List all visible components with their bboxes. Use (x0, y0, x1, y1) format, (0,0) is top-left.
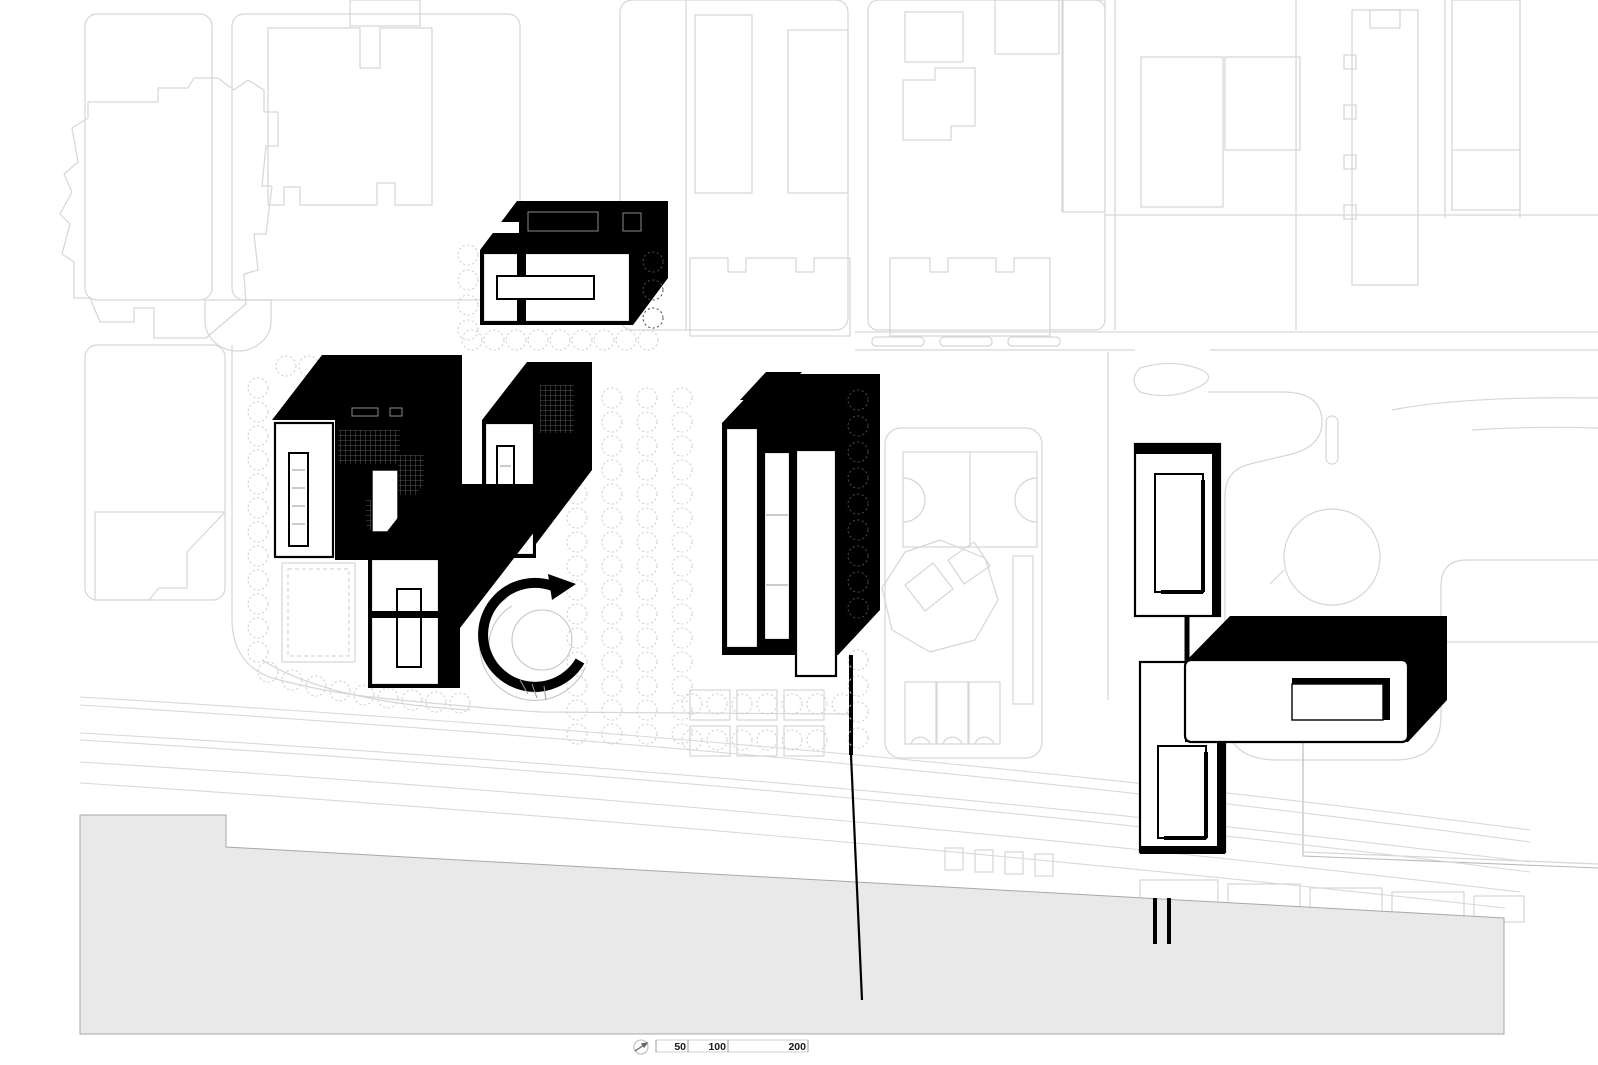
north-arrow-icon (634, 1040, 648, 1054)
site-plan-drawing: 50 100 200 (0, 0, 1598, 1065)
amphitheater (480, 574, 585, 700)
water-area (80, 815, 1504, 1034)
building-harbor-box (1185, 616, 1447, 742)
site-plan-page: 50 100 200 (0, 0, 1598, 1065)
scale-label-100: 100 (708, 1041, 726, 1053)
scale-bar: 50 100 200 (634, 1040, 808, 1054)
scale-label-50: 50 (674, 1041, 686, 1053)
scale-label-200: 200 (788, 1041, 806, 1053)
building-north-slab (480, 201, 668, 325)
